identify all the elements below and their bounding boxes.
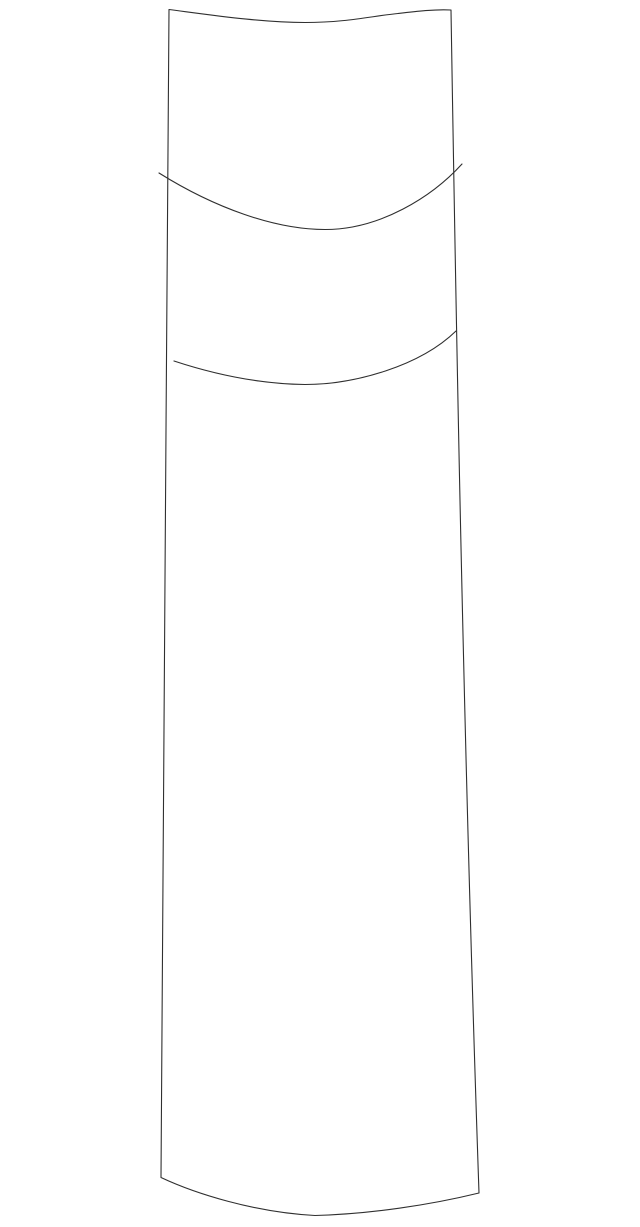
column-sketch-svg <box>0 0 640 1227</box>
canvas-background <box>0 0 640 1227</box>
line-drawing-canvas <box>0 0 640 1227</box>
